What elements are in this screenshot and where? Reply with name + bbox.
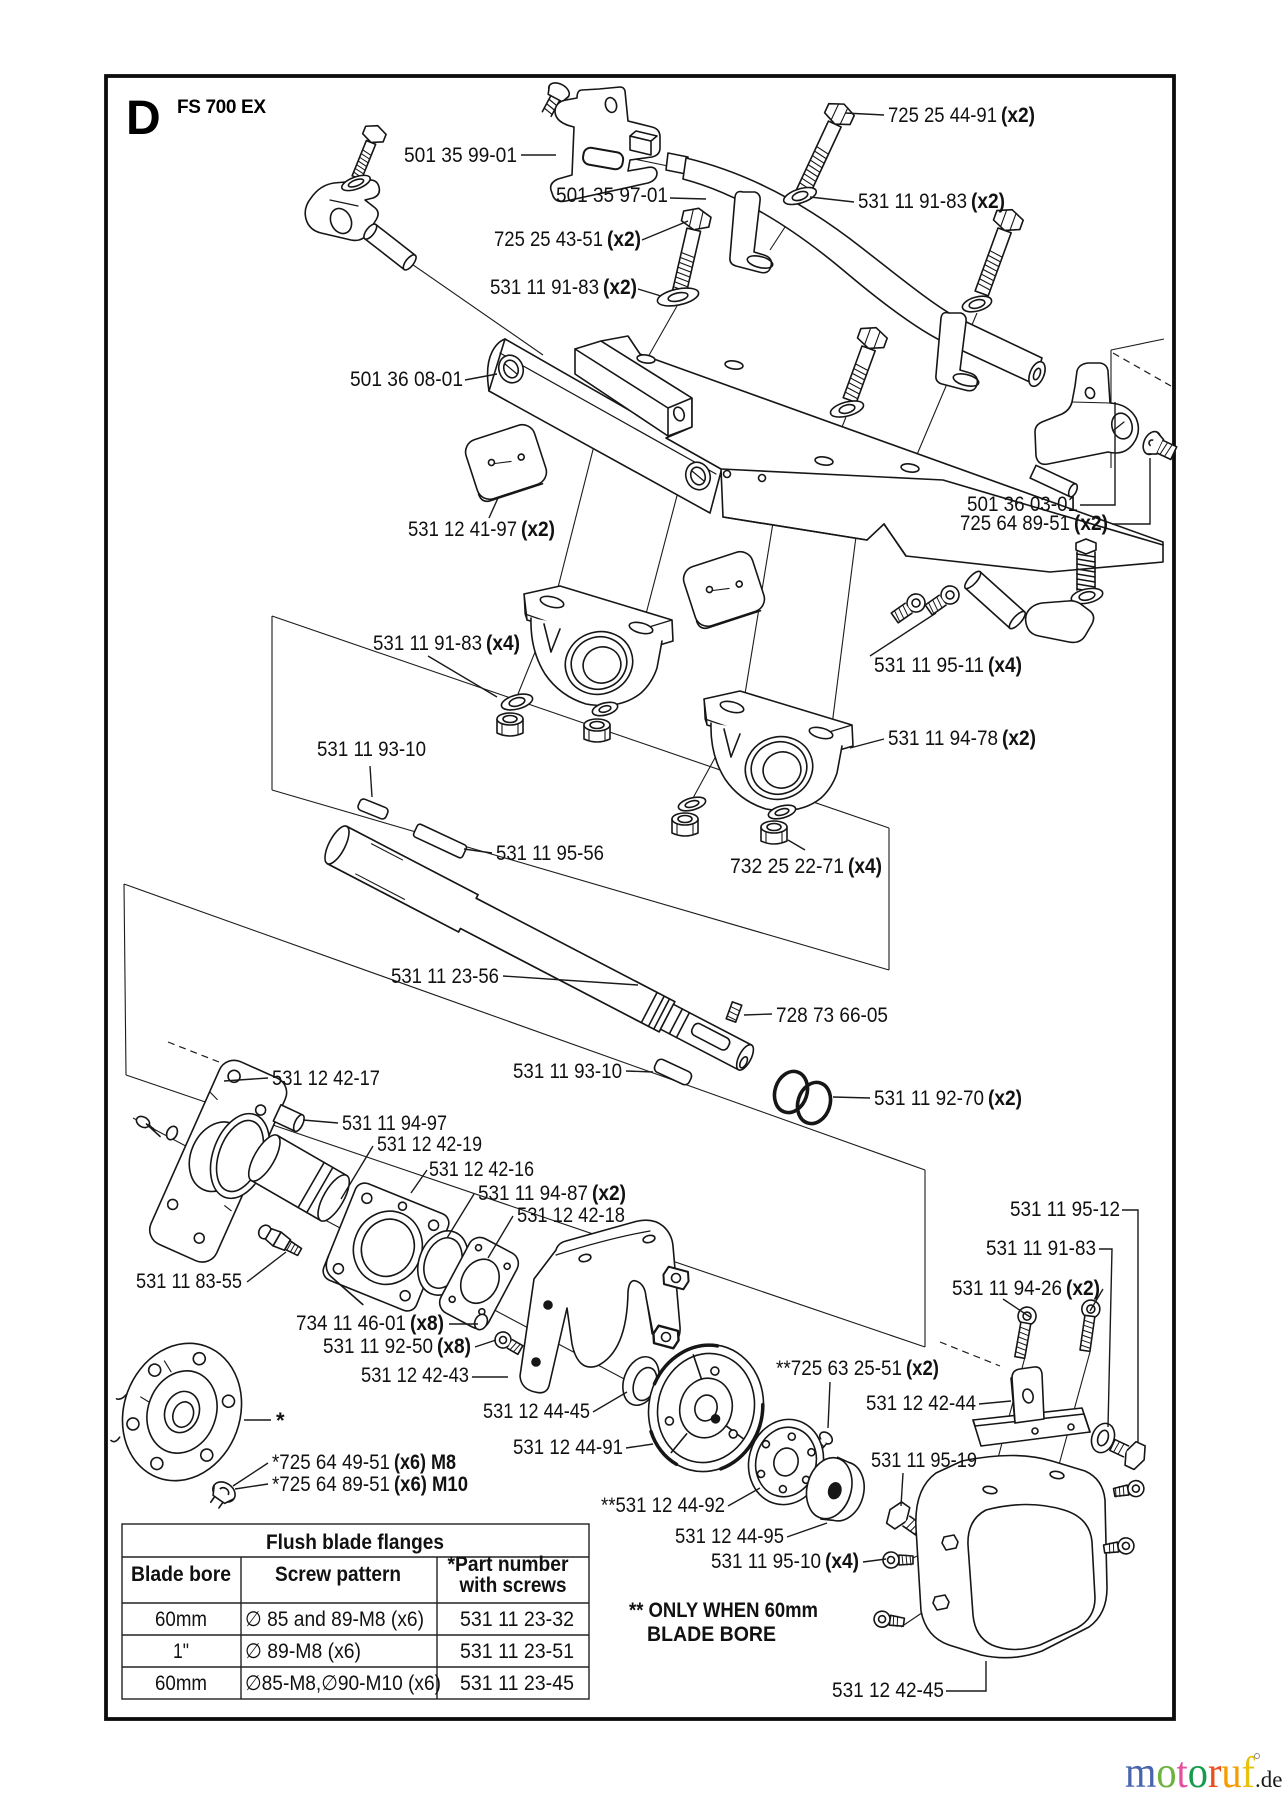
svg-text:531 11 94-26: 531 11 94-26 [952,1277,1062,1300]
svg-text:∅85-M8,∅90-M10 (x6): ∅85-M8,∅90-M10 (x6) [245,1672,441,1695]
svg-text:Screw pattern: Screw pattern [275,1563,401,1586]
svg-text:(x4): (x4) [988,654,1022,677]
svg-text:(x4): (x4) [825,1550,859,1573]
svg-text:(x6) M10: (x6) M10 [394,1473,468,1496]
svg-text:*: * [276,1408,285,1433]
svg-text:728 73 66-05: 728 73 66-05 [776,1004,888,1027]
svg-text:531 11 23-51: 531 11 23-51 [460,1640,574,1663]
svg-text:*725 64 89-51: *725 64 89-51 [272,1473,390,1496]
svg-text:531 11 92-50: 531 11 92-50 [323,1335,433,1358]
svg-text:531 11 83-55: 531 11 83-55 [136,1270,242,1293]
svg-text:Blade bore: Blade bore [131,1563,231,1586]
svg-text:531 12 42-45: 531 12 42-45 [832,1679,944,1702]
svg-text:501 35 97-01: 501 35 97-01 [556,184,668,207]
svg-text:725 64 89-51: 725 64 89-51 [960,512,1070,535]
svg-text:motoruf: motoruf [1125,1748,1255,1797]
svg-text:531 11 91-83: 531 11 91-83 [373,632,482,655]
svg-text:**531 12 44-92: **531 12 44-92 [601,1494,725,1517]
svg-text:531 12 44-95: 531 12 44-95 [675,1525,784,1548]
svg-text:531 12 44-45: 531 12 44-45 [483,1400,590,1423]
svg-text:531 12 42-17: 531 12 42-17 [272,1067,380,1090]
svg-text:(x8): (x8) [410,1312,444,1335]
svg-text:1": 1" [173,1640,189,1663]
svg-text:(x4): (x4) [848,855,882,878]
svg-text:(x2): (x2) [592,1182,626,1205]
svg-text:(x2): (x2) [607,228,641,251]
svg-text:531 11 94-87: 531 11 94-87 [478,1182,588,1205]
svg-text:725 25 44-91: 725 25 44-91 [888,104,997,127]
svg-text:734 11 46-01: 734 11 46-01 [296,1312,406,1335]
svg-text:(x2): (x2) [1066,1277,1100,1300]
svg-text:531 11 91-83: 531 11 91-83 [490,276,599,299]
svg-text:531 11 95-11: 531 11 95-11 [874,654,984,677]
svg-text:531 12 42-19: 531 12 42-19 [377,1133,482,1156]
svg-text:(x2): (x2) [1002,727,1036,750]
svg-text:531 12 42-18: 531 12 42-18 [517,1204,625,1227]
svg-text:*725 64 49-51: *725 64 49-51 [272,1451,390,1474]
svg-text:.de: .de [1255,1767,1282,1792]
svg-text:(x2): (x2) [1074,512,1108,535]
svg-text:531 11 91-83: 531 11 91-83 [858,190,967,213]
svg-text:531 11 23-32: 531 11 23-32 [460,1608,574,1631]
svg-text:(x2): (x2) [521,518,555,541]
svg-text:(x6) M8: (x6) M8 [394,1451,456,1474]
svg-text:531 12 42-44: 531 12 42-44 [866,1392,976,1415]
svg-text:531 11 93-10: 531 11 93-10 [317,738,426,761]
svg-text:**725 63 25-51: **725 63 25-51 [776,1357,902,1380]
svg-text:531 11 95-10: 531 11 95-10 [711,1550,821,1573]
svg-text:531 11 23-45: 531 11 23-45 [460,1672,574,1695]
svg-text:531 11 93-10: 531 11 93-10 [513,1060,622,1083]
svg-text:60mm: 60mm [155,1608,207,1631]
svg-text:531 12 42-43: 531 12 42-43 [361,1364,469,1387]
svg-text:531 11 94-78: 531 11 94-78 [888,727,998,750]
svg-text:60mm: 60mm [155,1672,207,1695]
svg-text:∅ 85 and 89-M8 (x6): ∅ 85 and 89-M8 (x6) [245,1608,424,1631]
svg-text:D: D [126,92,161,145]
svg-text:(x2): (x2) [988,1087,1022,1110]
svg-text:** ONLY WHEN 60mm: ** ONLY WHEN 60mm [629,1599,818,1622]
svg-text:732 25 22-71: 732 25 22-71 [730,855,844,878]
svg-text:BLADE BORE: BLADE BORE [647,1623,776,1646]
svg-text:531 12 42-16: 531 12 42-16 [429,1158,534,1181]
svg-text:531 11 95-56: 531 11 95-56 [496,842,604,865]
svg-text:Flush blade flanges: Flush blade flanges [266,1531,444,1554]
svg-text:531 11 95-19: 531 11 95-19 [871,1449,977,1472]
svg-text:(x2): (x2) [906,1357,939,1380]
svg-text:∅ 89-M8 (x6): ∅ 89-M8 (x6) [245,1640,361,1663]
svg-text:(x2): (x2) [1001,104,1035,127]
svg-text:531 11 92-70: 531 11 92-70 [874,1087,984,1110]
svg-text:531 11 23-56: 531 11 23-56 [391,965,499,988]
svg-text:501 36 08-01: 501 36 08-01 [350,368,463,391]
svg-text:531 12 44-91: 531 12 44-91 [513,1436,623,1459]
svg-text:(x2): (x2) [603,276,637,299]
svg-text:531 11 91-83: 531 11 91-83 [986,1237,1096,1260]
svg-text:(x4): (x4) [486,632,520,655]
svg-text:(x8): (x8) [437,1335,471,1358]
svg-text:531 11 95-12: 531 11 95-12 [1010,1198,1120,1221]
svg-text:FS 700 EX: FS 700 EX [177,97,266,118]
svg-text:501 35 99-01: 501 35 99-01 [404,144,517,167]
svg-text:531 12 41-97: 531 12 41-97 [408,518,517,541]
svg-text:with screws: with screws [459,1574,567,1597]
svg-text:531 11 94-97: 531 11 94-97 [342,1112,447,1135]
svg-text:*Part number: *Part number [448,1553,569,1576]
svg-text:(x2): (x2) [971,190,1005,213]
svg-text:725 25 43-51: 725 25 43-51 [494,228,603,251]
